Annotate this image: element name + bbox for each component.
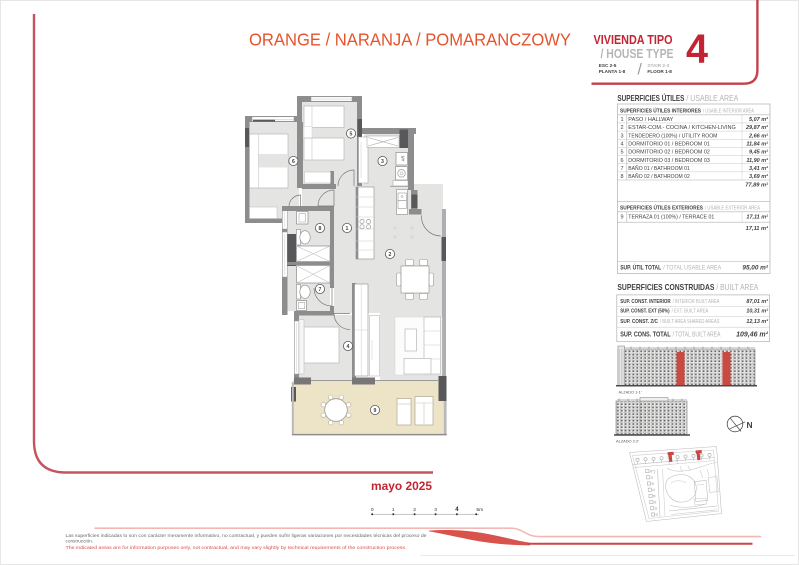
svg-text:DORMITORIO 03 / BEDROOM 03: DORMITORIO 03 / BEDROOM 03: [628, 158, 710, 164]
svg-text:17,11 m²: 17,11 m²: [746, 225, 769, 232]
svg-text:/ USABLE INTERIOR AREA: / USABLE INTERIOR AREA: [703, 109, 754, 115]
svg-text:4: 4: [347, 344, 350, 350]
svg-text:2: 2: [389, 252, 392, 258]
svg-text:6: 6: [620, 158, 623, 164]
svg-text:7: 7: [620, 166, 623, 172]
svg-text:11,90 m²: 11,90 m²: [746, 157, 768, 164]
svg-text:SUP. CONST. INTERIOR: SUP. CONST. INTERIOR: [620, 299, 670, 305]
svg-text:SUPERFICIES ÚTILES EXTERIORES: SUPERFICIES ÚTILES EXTERIORES: [620, 204, 703, 211]
svg-text:1: 1: [392, 507, 395, 513]
svg-text:2: 2: [413, 507, 416, 513]
svg-text:SUPERFICIES CONSTRUIDAS: SUPERFICIES CONSTRUIDAS: [617, 282, 714, 292]
svg-text:7: 7: [319, 287, 322, 293]
svg-text:BAÑO 02 / BATHROOM 02: BAÑO 02 / BATHROOM 02: [628, 173, 690, 180]
svg-text:5,07 m²: 5,07 m²: [749, 116, 768, 123]
svg-text:/ BUILT AREA SHARED AREAS: / BUILT AREA SHARED AREAS: [660, 319, 720, 325]
svg-text:/ TOTAL BUILT AREA: / TOTAL BUILT AREA: [673, 332, 721, 339]
svg-text:6: 6: [292, 159, 295, 165]
svg-text:FLOOR 1-8: FLOOR 1-8: [647, 69, 672, 74]
svg-text:mayo 2025: mayo 2025: [371, 479, 432, 493]
svg-text:5: 5: [350, 132, 353, 138]
svg-text:3: 3: [381, 159, 384, 165]
svg-text:The indicated areas are for in: The indicated areas are for information …: [66, 545, 407, 550]
svg-text:ORANGE / NARANJA / POMARANCZOW: ORANGE / NARANJA / POMARANCZOWY: [249, 30, 571, 50]
svg-text:construcción.: construcción.: [66, 539, 94, 544]
svg-text:PLANTA 1-8: PLANTA 1-8: [599, 69, 626, 74]
svg-text:12,13 m²: 12,13 m²: [746, 319, 768, 325]
svg-text:8: 8: [319, 226, 322, 232]
svg-text:/ TOTAL USABLE AREA: / TOTAL USABLE AREA: [663, 265, 721, 272]
svg-text:AR: AR: [401, 156, 406, 162]
svg-text:ALZADO 1-1': ALZADO 1-1': [619, 390, 642, 395]
svg-text:ALZADO 2-2': ALZADO 2-2': [616, 439, 639, 444]
svg-text:SUPERFICIES ÚTILES: SUPERFICIES ÚTILES: [617, 92, 684, 103]
svg-text:2: 2: [620, 125, 623, 131]
svg-text:3: 3: [434, 507, 437, 513]
svg-text:10,31 m²: 10,31 m²: [746, 308, 768, 314]
svg-text:ESC 2-5: ESC 2-5: [599, 63, 617, 68]
svg-text:TERRAZA 01 (100%) / TERRACE 01: TERRAZA 01 (100%) / TERRACE 01: [628, 214, 714, 220]
svg-text:3,69 m²: 3,69 m²: [749, 173, 768, 180]
svg-text:DORMITORIO 02 / BEDROOM 02: DORMITORIO 02 / BEDROOM 02: [628, 150, 710, 156]
svg-text:/ BUILT AREA: / BUILT AREA: [716, 282, 758, 292]
svg-text:29,87 m²: 29,87 m²: [745, 124, 768, 131]
svg-text:9,45 m²: 9,45 m²: [749, 149, 768, 156]
svg-text:9: 9: [620, 214, 623, 220]
svg-text:STAIR 2-3: STAIR 2-3: [647, 63, 669, 68]
svg-text:1: 1: [346, 226, 349, 232]
svg-text:1: 1: [620, 117, 623, 123]
svg-text:/ HOUSE TYPE: / HOUSE TYPE: [601, 46, 674, 61]
svg-text:4: 4: [686, 26, 708, 72]
svg-text:2,66 m²: 2,66 m²: [748, 132, 768, 139]
svg-text:/ EXT. BUILT AREA: / EXT. BUILT AREA: [672, 308, 709, 314]
svg-text:95,00 m²: 95,00 m²: [742, 264, 768, 271]
svg-text:DORMITORIO 01 / BEDROOM 01: DORMITORIO 01 / BEDROOM 01: [628, 141, 710, 147]
svg-text:11,84 m²: 11,84 m²: [746, 140, 768, 147]
svg-text:4: 4: [620, 141, 623, 147]
svg-text:Las superficies indicadas lo s: Las superficies indicadas lo son con car…: [66, 533, 427, 538]
svg-text:9: 9: [374, 408, 377, 414]
svg-text:0: 0: [371, 507, 374, 513]
svg-text:SUPERFICIES ÚTILES INTERIORES: SUPERFICIES ÚTILES INTERIORES: [620, 108, 701, 115]
svg-text:SUP. ÚTIL TOTAL: SUP. ÚTIL TOTAL: [620, 263, 661, 272]
svg-text:87,01 m²: 87,01 m²: [746, 299, 768, 305]
svg-text:/ USABLE EXTERIOR AREA: / USABLE EXTERIOR AREA: [705, 205, 760, 211]
svg-text:3: 3: [620, 133, 623, 139]
svg-text:TENDEDERO (100%) / UTILITY ROO: TENDEDERO (100%) / UTILITY ROOM: [628, 133, 717, 139]
svg-text:/: /: [638, 62, 643, 79]
svg-text:/ USABLE AREA: / USABLE AREA: [686, 94, 738, 103]
svg-text:SUP. CONS. TOTAL: SUP. CONS. TOTAL: [620, 332, 671, 339]
svg-text:3,41 m²: 3,41 m²: [749, 165, 768, 172]
svg-text:17,11 m²: 17,11 m²: [746, 213, 768, 220]
svg-text:ESTAR-COM.- COCINA / KITCHEN-L: ESTAR-COM.- COCINA / KITCHEN-LIVING: [628, 125, 736, 131]
svg-text:109,46 m²: 109,46 m²: [736, 332, 769, 339]
svg-text:SUP. CONST. EXT (50%): SUP. CONST. EXT (50%): [620, 308, 670, 314]
svg-text:SUP. CONST. Z/C: SUP. CONST. Z/C: [620, 319, 658, 325]
svg-text:5m: 5m: [476, 507, 483, 513]
svg-text:BAÑO 01 / BATHROOM 01: BAÑO 01 / BATHROOM 01: [628, 165, 690, 172]
svg-text:5: 5: [620, 150, 623, 156]
svg-text:77,89 m²: 77,89 m²: [745, 182, 769, 189]
svg-text:PASO / HALLWAY: PASO / HALLWAY: [628, 117, 673, 123]
svg-text:/ INTERIOR BUILT AREA: / INTERIOR BUILT AREA: [673, 299, 720, 305]
svg-text:N: N: [747, 420, 753, 430]
svg-text:8: 8: [620, 174, 623, 180]
